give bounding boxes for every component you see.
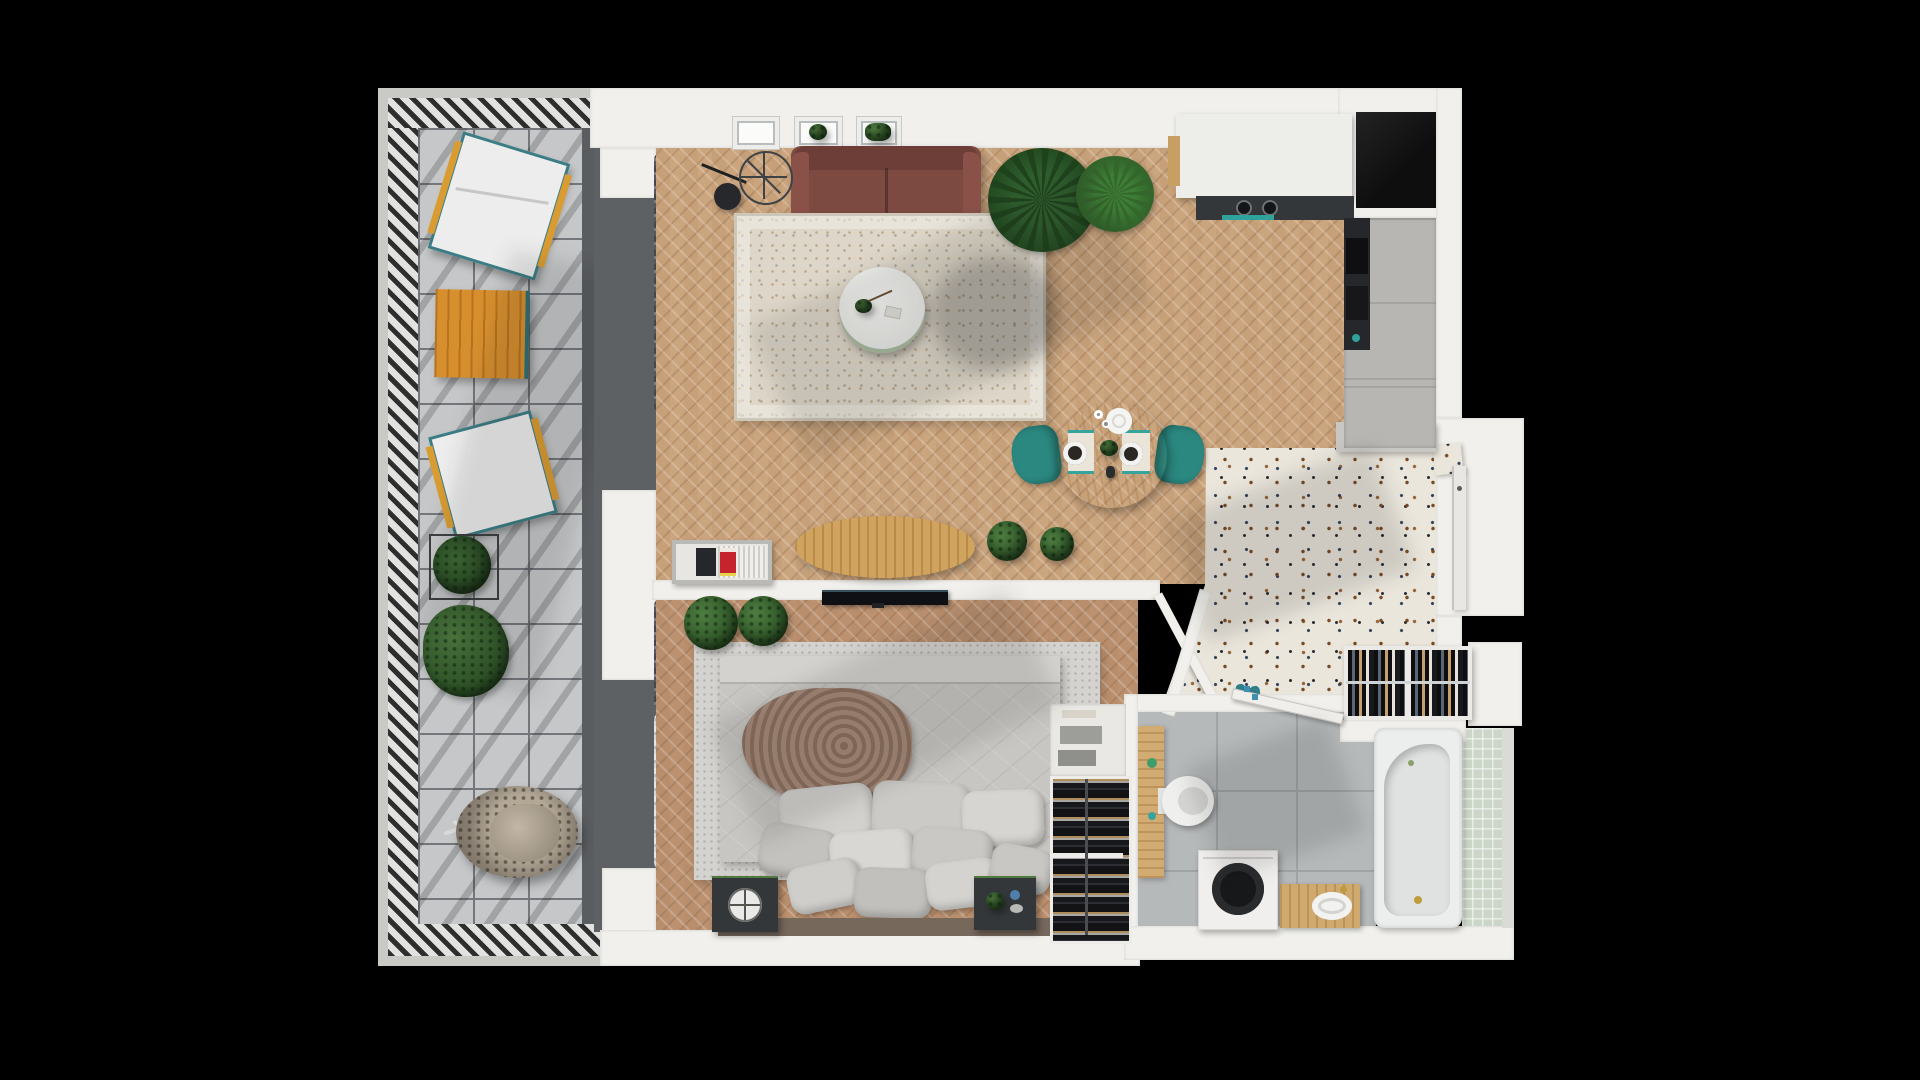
cabinet-tray-1 (1060, 726, 1102, 744)
console-plant-left (987, 521, 1027, 561)
media-shelf (672, 540, 772, 584)
tv-console-oval (795, 516, 975, 578)
kitchen-towel (1222, 215, 1274, 220)
window-planter-3 (856, 116, 902, 150)
nightstand-left (712, 876, 778, 932)
kettle-teal-dot (1352, 334, 1360, 342)
bathtub (1374, 728, 1462, 928)
wardrobe-rail (1346, 681, 1470, 684)
serving-plate (1106, 408, 1132, 434)
sink-cabinet (1280, 884, 1360, 928)
media-shelf-black-box (696, 548, 716, 576)
soap-green (1147, 758, 1157, 768)
tv (822, 590, 948, 605)
wall-right-mid (1436, 616, 1462, 648)
balcony-railing-bottom (388, 924, 600, 956)
nightstand-plant (986, 892, 1004, 910)
bathtub-drain (1408, 760, 1414, 766)
bottle-storage-rack (1050, 776, 1132, 944)
cooktop-burner-1 (1236, 200, 1252, 216)
kitchen-counter-top (1176, 114, 1352, 198)
window-pier-top (600, 148, 656, 198)
window-pier-bottom (602, 868, 656, 934)
hanging-egg-chair (442, 786, 582, 896)
tv-stand-foot (872, 603, 884, 608)
kitchen-counter-front (1196, 196, 1354, 220)
bathtub-green-tile-wall (1462, 728, 1502, 930)
window-planter-1 (732, 116, 780, 150)
rack-center-rail (1085, 779, 1088, 935)
balcony-railing-top (388, 98, 600, 128)
wall-bottom-bathroom (1124, 926, 1514, 960)
table-centerpiece-plant (1100, 440, 1118, 456)
speaker (728, 888, 762, 922)
vanity-item-teal (1148, 812, 1156, 820)
dining-chair-left (1008, 423, 1064, 487)
wall-edge-right-bath (1502, 728, 1514, 928)
oven-1 (1346, 238, 1368, 274)
sink-faucet-gold (1340, 886, 1347, 893)
bed-pillow-8 (853, 867, 933, 920)
dining-table (1057, 402, 1167, 508)
bedroom-plant-2 (738, 596, 788, 646)
window-pier-middle (602, 490, 656, 680)
open-wardrobe (1344, 646, 1472, 720)
oven-appliance-column (1344, 218, 1370, 350)
lamp-side-table (714, 183, 741, 210)
storage-cabinet-white (1050, 704, 1126, 776)
bedroom-plant-1 (684, 596, 738, 650)
plate-right (1119, 442, 1143, 466)
rack-divider (1053, 853, 1123, 858)
media-shelf-red-box (720, 548, 736, 576)
sink-basin (1312, 892, 1352, 920)
dining-area (1000, 396, 1210, 516)
nightstand-right (974, 876, 1036, 930)
balcony (378, 88, 602, 966)
speaker-spoke-h (730, 904, 760, 906)
balcony-railing-left (388, 98, 418, 956)
planter-2-plant (809, 124, 827, 140)
cup-2 (1102, 420, 1110, 428)
cabinet-towel (1062, 710, 1096, 718)
plate-left (1063, 441, 1087, 465)
entrance-door-handle (1457, 486, 1462, 491)
bathtub-faucet-gold (1414, 896, 1422, 904)
wall-wardrobe-right (1468, 642, 1522, 726)
floor-plan-stage (0, 0, 1920, 1080)
cabinet-tray-2 (1058, 750, 1096, 766)
nightstand-cup (1010, 890, 1020, 900)
console-plant-right (1040, 527, 1074, 561)
bathtub-inner-well (1384, 744, 1450, 916)
door-hook-1 (1244, 686, 1250, 692)
nightstand-saucer (1010, 904, 1023, 913)
door-hook-2 (1252, 694, 1258, 700)
egg-chair-basket (456, 786, 578, 878)
pepper-grinder (1106, 466, 1115, 478)
oven-2 (1346, 286, 1368, 320)
cup-1 (1094, 410, 1103, 419)
planter-3-plant (865, 123, 891, 141)
window-planter-2 (794, 116, 843, 150)
lounge-chair-1-fold (455, 187, 548, 205)
cooktop-burner-2 (1262, 200, 1278, 216)
kitchen-counter-wood-edge (1168, 136, 1180, 186)
floor-lamp-wheel (739, 151, 793, 205)
sofa-backrest (795, 146, 977, 170)
